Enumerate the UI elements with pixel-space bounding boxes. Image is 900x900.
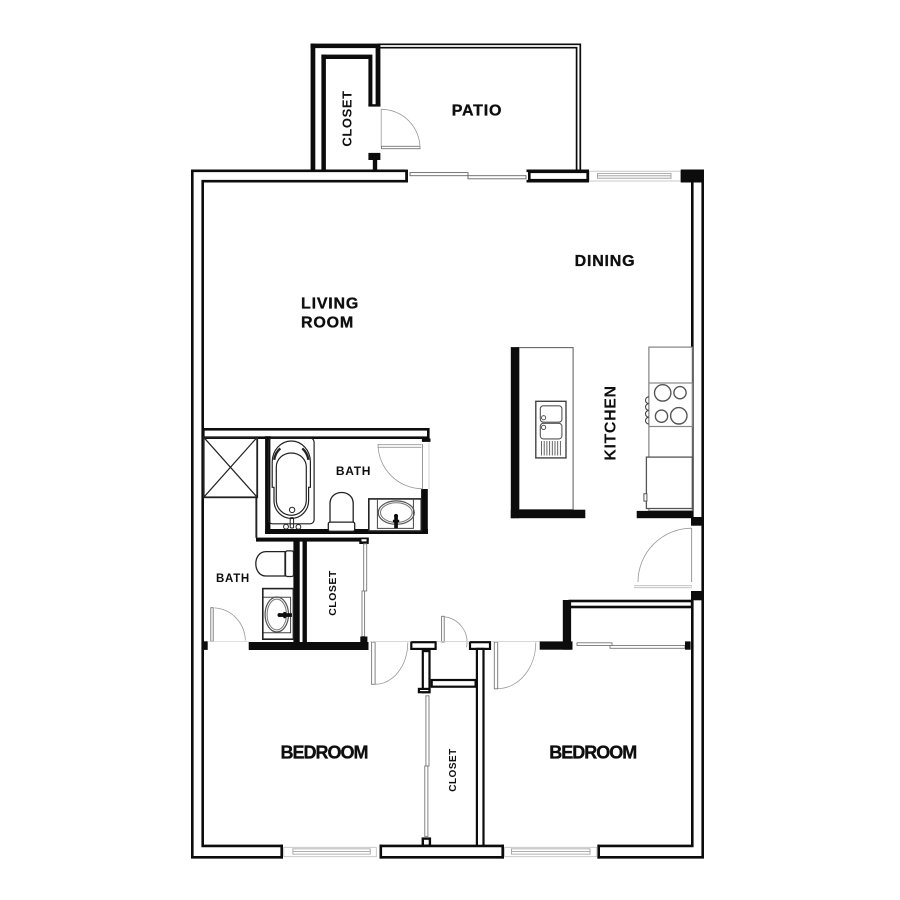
svg-text:CLOSET: CLOSET: [340, 90, 355, 146]
svg-text:LIVING: LIVING: [301, 295, 359, 312]
svg-text:DINING: DINING: [575, 253, 636, 270]
svg-text:CLOSET: CLOSET: [448, 748, 459, 792]
svg-text:BATH: BATH: [216, 573, 250, 585]
svg-text:PATIO: PATIO: [452, 102, 503, 119]
svg-text:BEDROOM: BEDROOM: [549, 743, 636, 763]
svg-text:BEDROOM: BEDROOM: [281, 743, 368, 763]
svg-text:CLOSET: CLOSET: [327, 570, 339, 616]
svg-text:BATH: BATH: [336, 464, 371, 478]
svg-text:ROOM: ROOM: [301, 315, 354, 332]
svg-text:KITCHEN: KITCHEN: [603, 385, 620, 460]
